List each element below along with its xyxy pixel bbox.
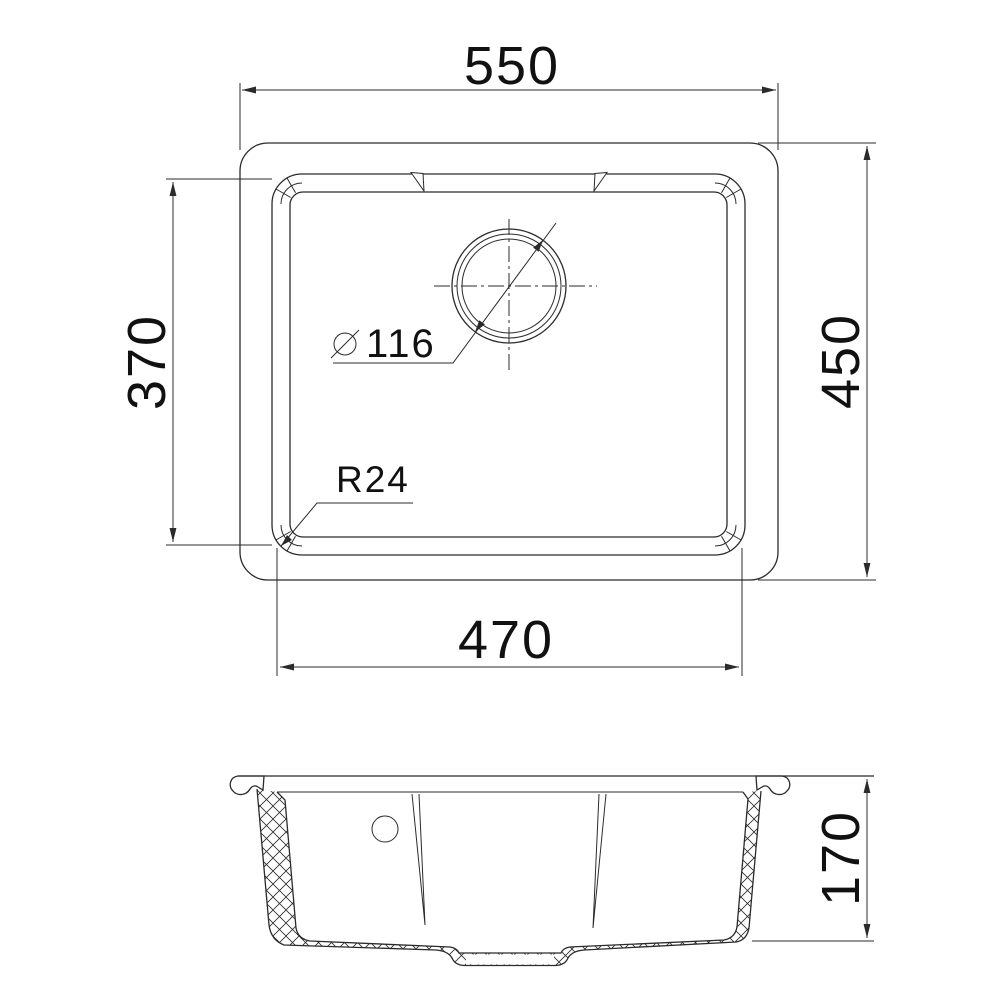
dim-450-text: 450	[811, 313, 871, 409]
dim-170-text: 170	[811, 810, 871, 906]
drain-channel-strip	[466, 955, 554, 965]
top-view: 116 R24 550 450 370	[117, 36, 876, 676]
dim-370-text: 370	[117, 314, 177, 410]
rim-dart-right	[594, 173, 607, 192]
drain-diameter-value: 116	[366, 322, 436, 366]
dim-overall-width: 550	[240, 36, 778, 150]
section-cut-material	[257, 789, 761, 966]
diameter-symbol-icon	[331, 330, 359, 358]
dim-bowl-width: 470	[277, 548, 742, 676]
radius-leader-line	[281, 503, 413, 546]
dim-470-text: 470	[458, 610, 554, 670]
section-interior-outline	[277, 792, 748, 953]
section-hole	[372, 816, 398, 842]
corner-radius-dimension: R24	[281, 459, 413, 546]
dim-550-text: 550	[464, 36, 560, 96]
drain-diameter-dimension: 116	[331, 223, 556, 366]
bowl-slope-edge-left	[412, 794, 425, 925]
drain-hole	[434, 219, 597, 372]
dim-section-height: 170	[752, 779, 874, 941]
sink-technical-drawing-page: 116 R24 550 450 370	[0, 0, 1000, 1000]
dim-bowl-depth: 370	[117, 179, 272, 545]
section-exterior-outline	[257, 789, 761, 966]
corner-radius-label: R24	[336, 459, 410, 500]
sink-technical-drawing: 116 R24 550 450 370	[0, 0, 1000, 1000]
bowl-slope-edge-right	[593, 794, 606, 928]
dim-overall-depth: 450	[758, 143, 876, 580]
section-view: 170	[230, 776, 874, 966]
rim-dart-left	[411, 173, 424, 192]
